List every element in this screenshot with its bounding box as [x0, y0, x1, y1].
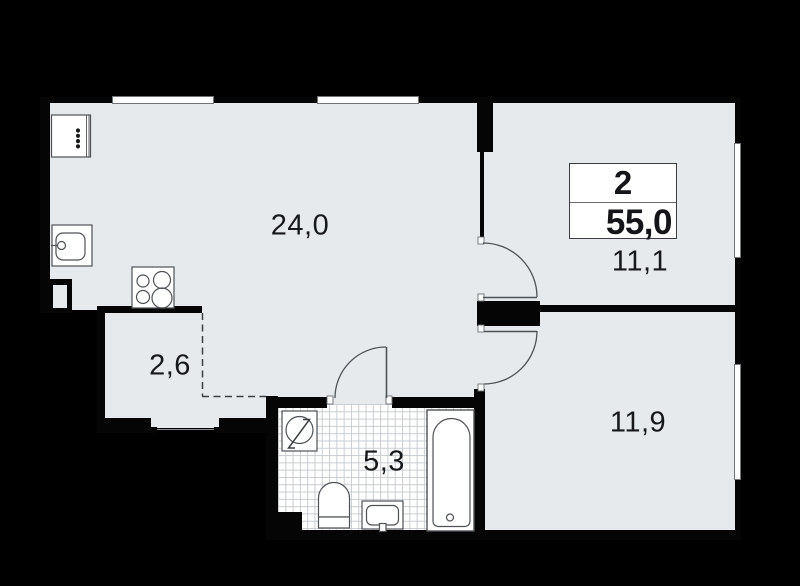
apartment-info-box: 2 55,0 [569, 163, 677, 239]
stove-icon [132, 267, 174, 308]
rooms-count: 2 [570, 164, 676, 202]
total-area: 55,0 [570, 202, 676, 243]
kitchen-sink-icon [51, 225, 92, 266]
room-label-bedroom-top: 11,1 [612, 246, 668, 279]
apartment-floorplan: 24,0 11,1 11,9 2,6 5,3 2 55,0 [0, 0, 800, 586]
door-bathroom [327, 347, 392, 404]
room-label-living-kitchen: 24,0 [271, 210, 329, 243]
room-label-bedroom-bottom: 11,9 [610, 407, 666, 440]
room-label-bathroom: 5,3 [363, 446, 405, 479]
washing-machine-icon [282, 411, 317, 451]
door-bedroom-bottom [478, 325, 537, 391]
bathroom-sink-icon [362, 501, 403, 532]
hallway-dashed-boundary [202, 313, 266, 397]
door-bedroom-top [478, 237, 537, 301]
room-label-hallway: 2,6 [149, 350, 191, 383]
fridge-icon [52, 115, 91, 157]
bathtub-icon [427, 410, 474, 531]
floorplan-graphics [0, 0, 800, 586]
toilet-icon [319, 483, 350, 529]
